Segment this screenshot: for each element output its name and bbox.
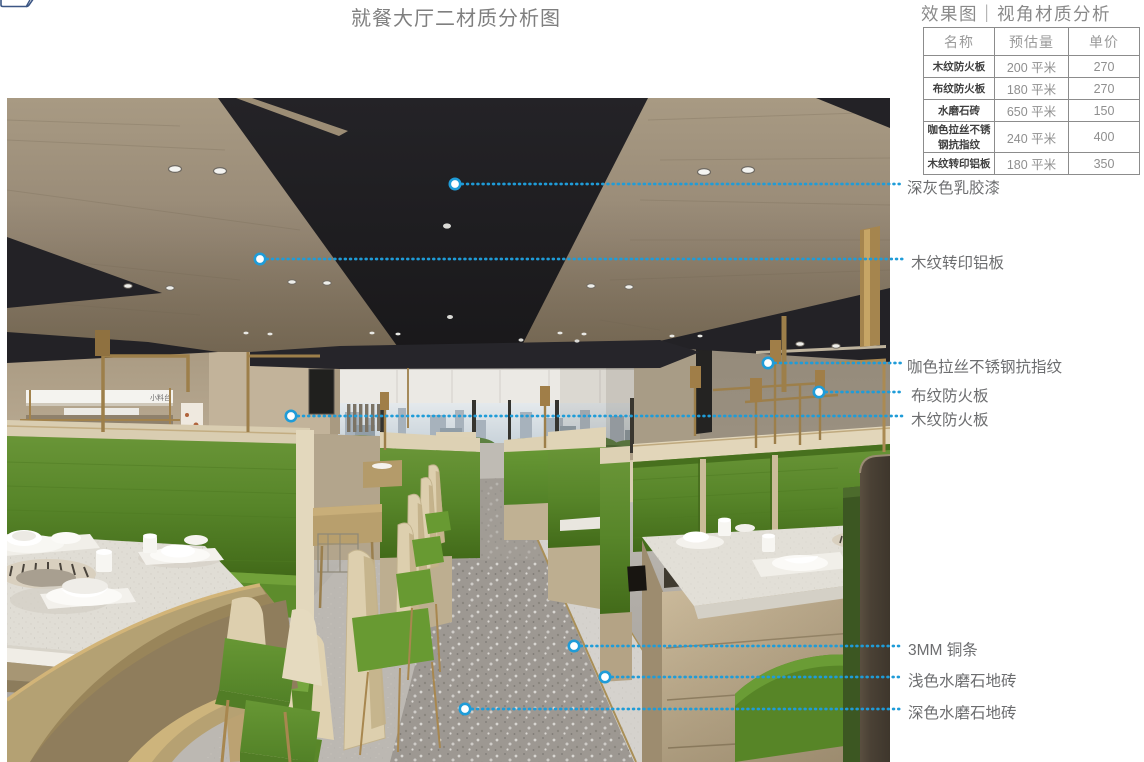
- svg-text:小料台: 小料台: [150, 393, 171, 402]
